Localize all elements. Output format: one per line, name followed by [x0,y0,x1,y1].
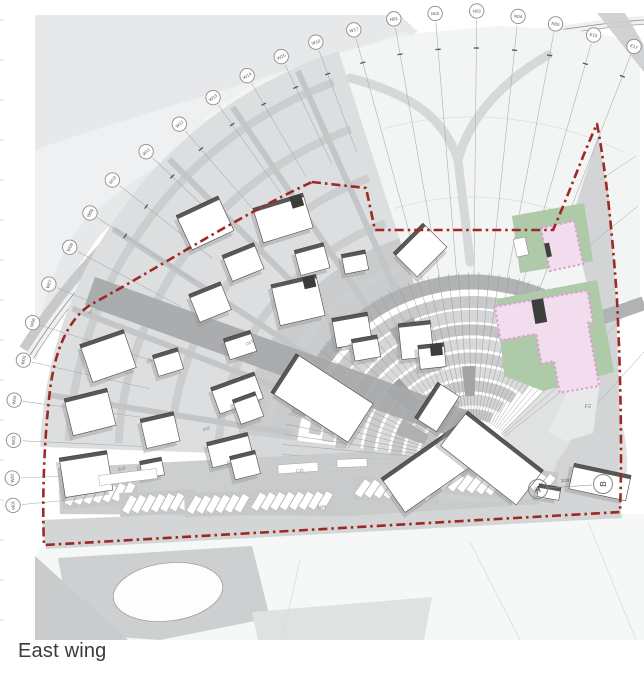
dimension-label: 2000 [561,478,572,484]
grid-bubble: W08 [63,240,77,254]
grid-bubble: N03 [470,3,484,18]
grid-bubble: N04 [511,8,525,23]
grid-bubble: W05 [16,353,31,367]
strip-building [337,458,367,467]
grid-bubble: W16 [309,35,323,50]
page-edge-ticks [0,20,4,620]
zone-label-f2: F2 [585,404,591,410]
site-plan-drawing: W01W02W03W04W05W06W07W08W09W10W11W12W13W… [0,0,644,644]
grid-bubble: W13 [206,90,220,104]
grid-bubble: W15 [274,49,288,63]
grid-bubble: W09 [83,206,97,220]
grid-bubble: W02 [4,471,19,485]
grid-bubble: W04 [6,393,21,407]
building-footprint [347,335,381,366]
grid-bubble: W12 [172,117,186,131]
grid-bubble: W03 [6,433,21,447]
svg-text:B: B [598,481,608,487]
grid-bubble-label: N04 [514,14,523,20]
grid-bubble-label: N02 [431,11,440,17]
parking-cluster [249,488,335,513]
svg-text:A: A [535,484,541,494]
grid-bubble-label: W01 [10,500,16,510]
building-footprint [414,343,447,374]
parking-cluster [184,491,252,517]
grid-bubble: E15 [586,27,600,42]
grid-bubble: W11 [139,144,153,158]
grid-bubble: W10 [105,173,119,187]
grid-bubble: N02 [428,6,442,21]
grid-bubble-label: W02 [10,473,15,483]
grid-bubble: W06 [25,315,40,329]
grid-bubble: W01 [5,498,20,512]
grid-bubble: E17 [627,39,641,54]
grid-bubble: N05 [548,16,562,31]
grid-bubble: W07 [41,277,56,291]
grid-bubble: W17 [347,22,361,37]
lot-label: D19 [318,504,327,510]
caption-east-wing: East wing [18,640,107,663]
grid-bubble-label: W03 [11,435,16,445]
grid-bubble: N01 [387,11,401,26]
grid-bubble-label: N03 [473,9,482,14]
grid-bubble: W14 [240,68,254,82]
